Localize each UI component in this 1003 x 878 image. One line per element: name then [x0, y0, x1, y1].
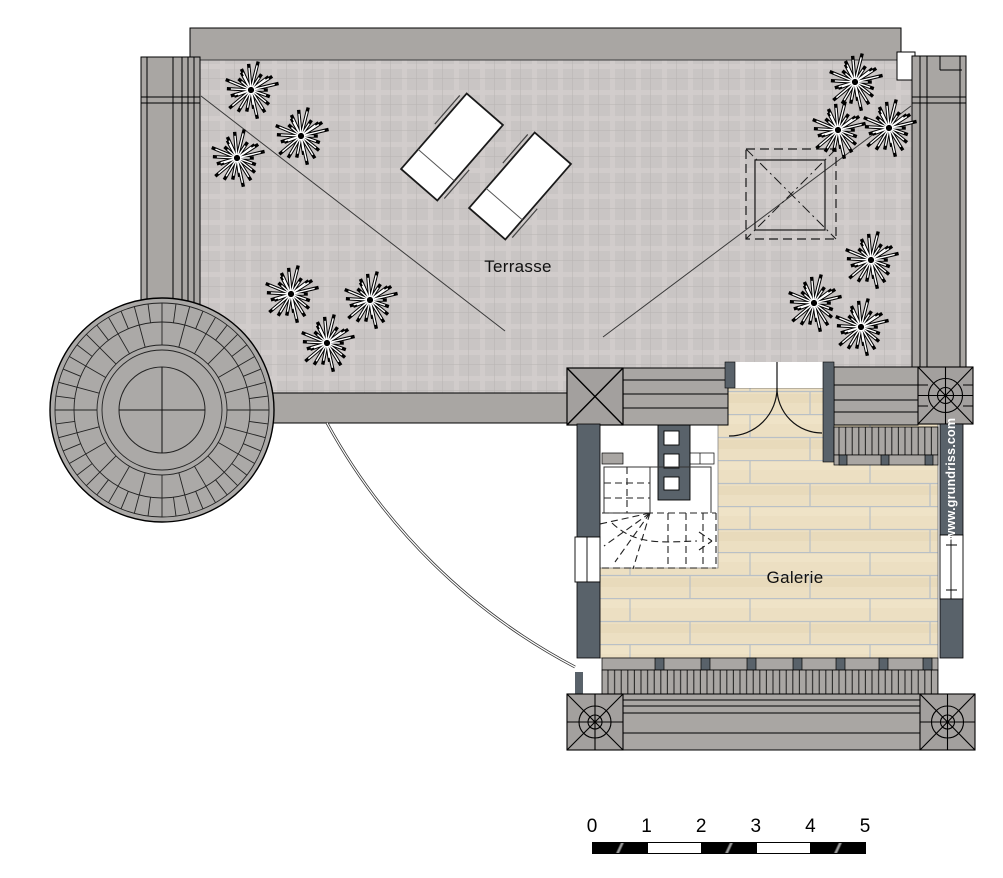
railing-top-right — [834, 427, 938, 455]
scale-bar-segments — [592, 842, 866, 854]
door-jamb-left — [725, 362, 735, 388]
gallery-label: Galerie — [767, 568, 824, 588]
gallery-structure — [567, 362, 975, 750]
duct-shaft — [658, 424, 690, 500]
right-wall-lower — [940, 599, 963, 658]
pillar-top-left — [567, 368, 623, 425]
stair-sill-left — [602, 453, 623, 464]
left-wall-upper — [577, 424, 600, 537]
scale-tick: 4 — [805, 816, 816, 838]
door-jamb-right — [823, 362, 834, 462]
left-wall-stub — [575, 672, 583, 694]
pillar-bottom-right — [920, 694, 975, 750]
scale-segment — [593, 843, 647, 853]
floor-plan: Terrasse Galerie www.grundriss.com 01234… — [0, 0, 1003, 878]
left-wall-window — [575, 537, 600, 582]
scale-tick-labels: 012345 — [592, 816, 866, 840]
watermark-text: www.grundriss.com — [944, 418, 958, 540]
scale-bar: 012345 — [592, 816, 866, 858]
pillar-bottom-left — [567, 694, 623, 750]
scale-tick: 0 — [587, 816, 598, 838]
doorway-threshold — [734, 362, 823, 388]
railing-bottom — [602, 670, 938, 694]
scale-tick: 2 — [696, 816, 707, 838]
scale-tick: 1 — [641, 816, 652, 838]
scale-segment — [811, 843, 865, 853]
scale-segment — [647, 843, 703, 853]
floor-plan-drawing — [0, 0, 1003, 878]
scale-tick: 3 — [751, 816, 762, 838]
terrace-right-wall — [912, 56, 966, 372]
pillar-top-right — [918, 367, 973, 424]
sill-bottom — [602, 658, 938, 670]
terrace-top-wall — [190, 28, 901, 60]
stair-sill-right — [688, 453, 714, 464]
lower-roof-arc — [327, 423, 575, 667]
terrace-bottom-wall — [272, 393, 567, 423]
sill-top-right — [834, 455, 938, 465]
round-tower — [50, 298, 274, 522]
balcony-deck — [623, 694, 920, 750]
right-wall-window — [940, 535, 963, 599]
window-band-left — [623, 368, 728, 425]
window-band-right — [834, 367, 918, 425]
terrace-label: Terrasse — [484, 257, 552, 277]
scale-segment — [702, 843, 756, 853]
scale-segment — [756, 843, 812, 853]
left-wall-lower — [577, 582, 600, 658]
scale-tick: 5 — [860, 816, 871, 838]
